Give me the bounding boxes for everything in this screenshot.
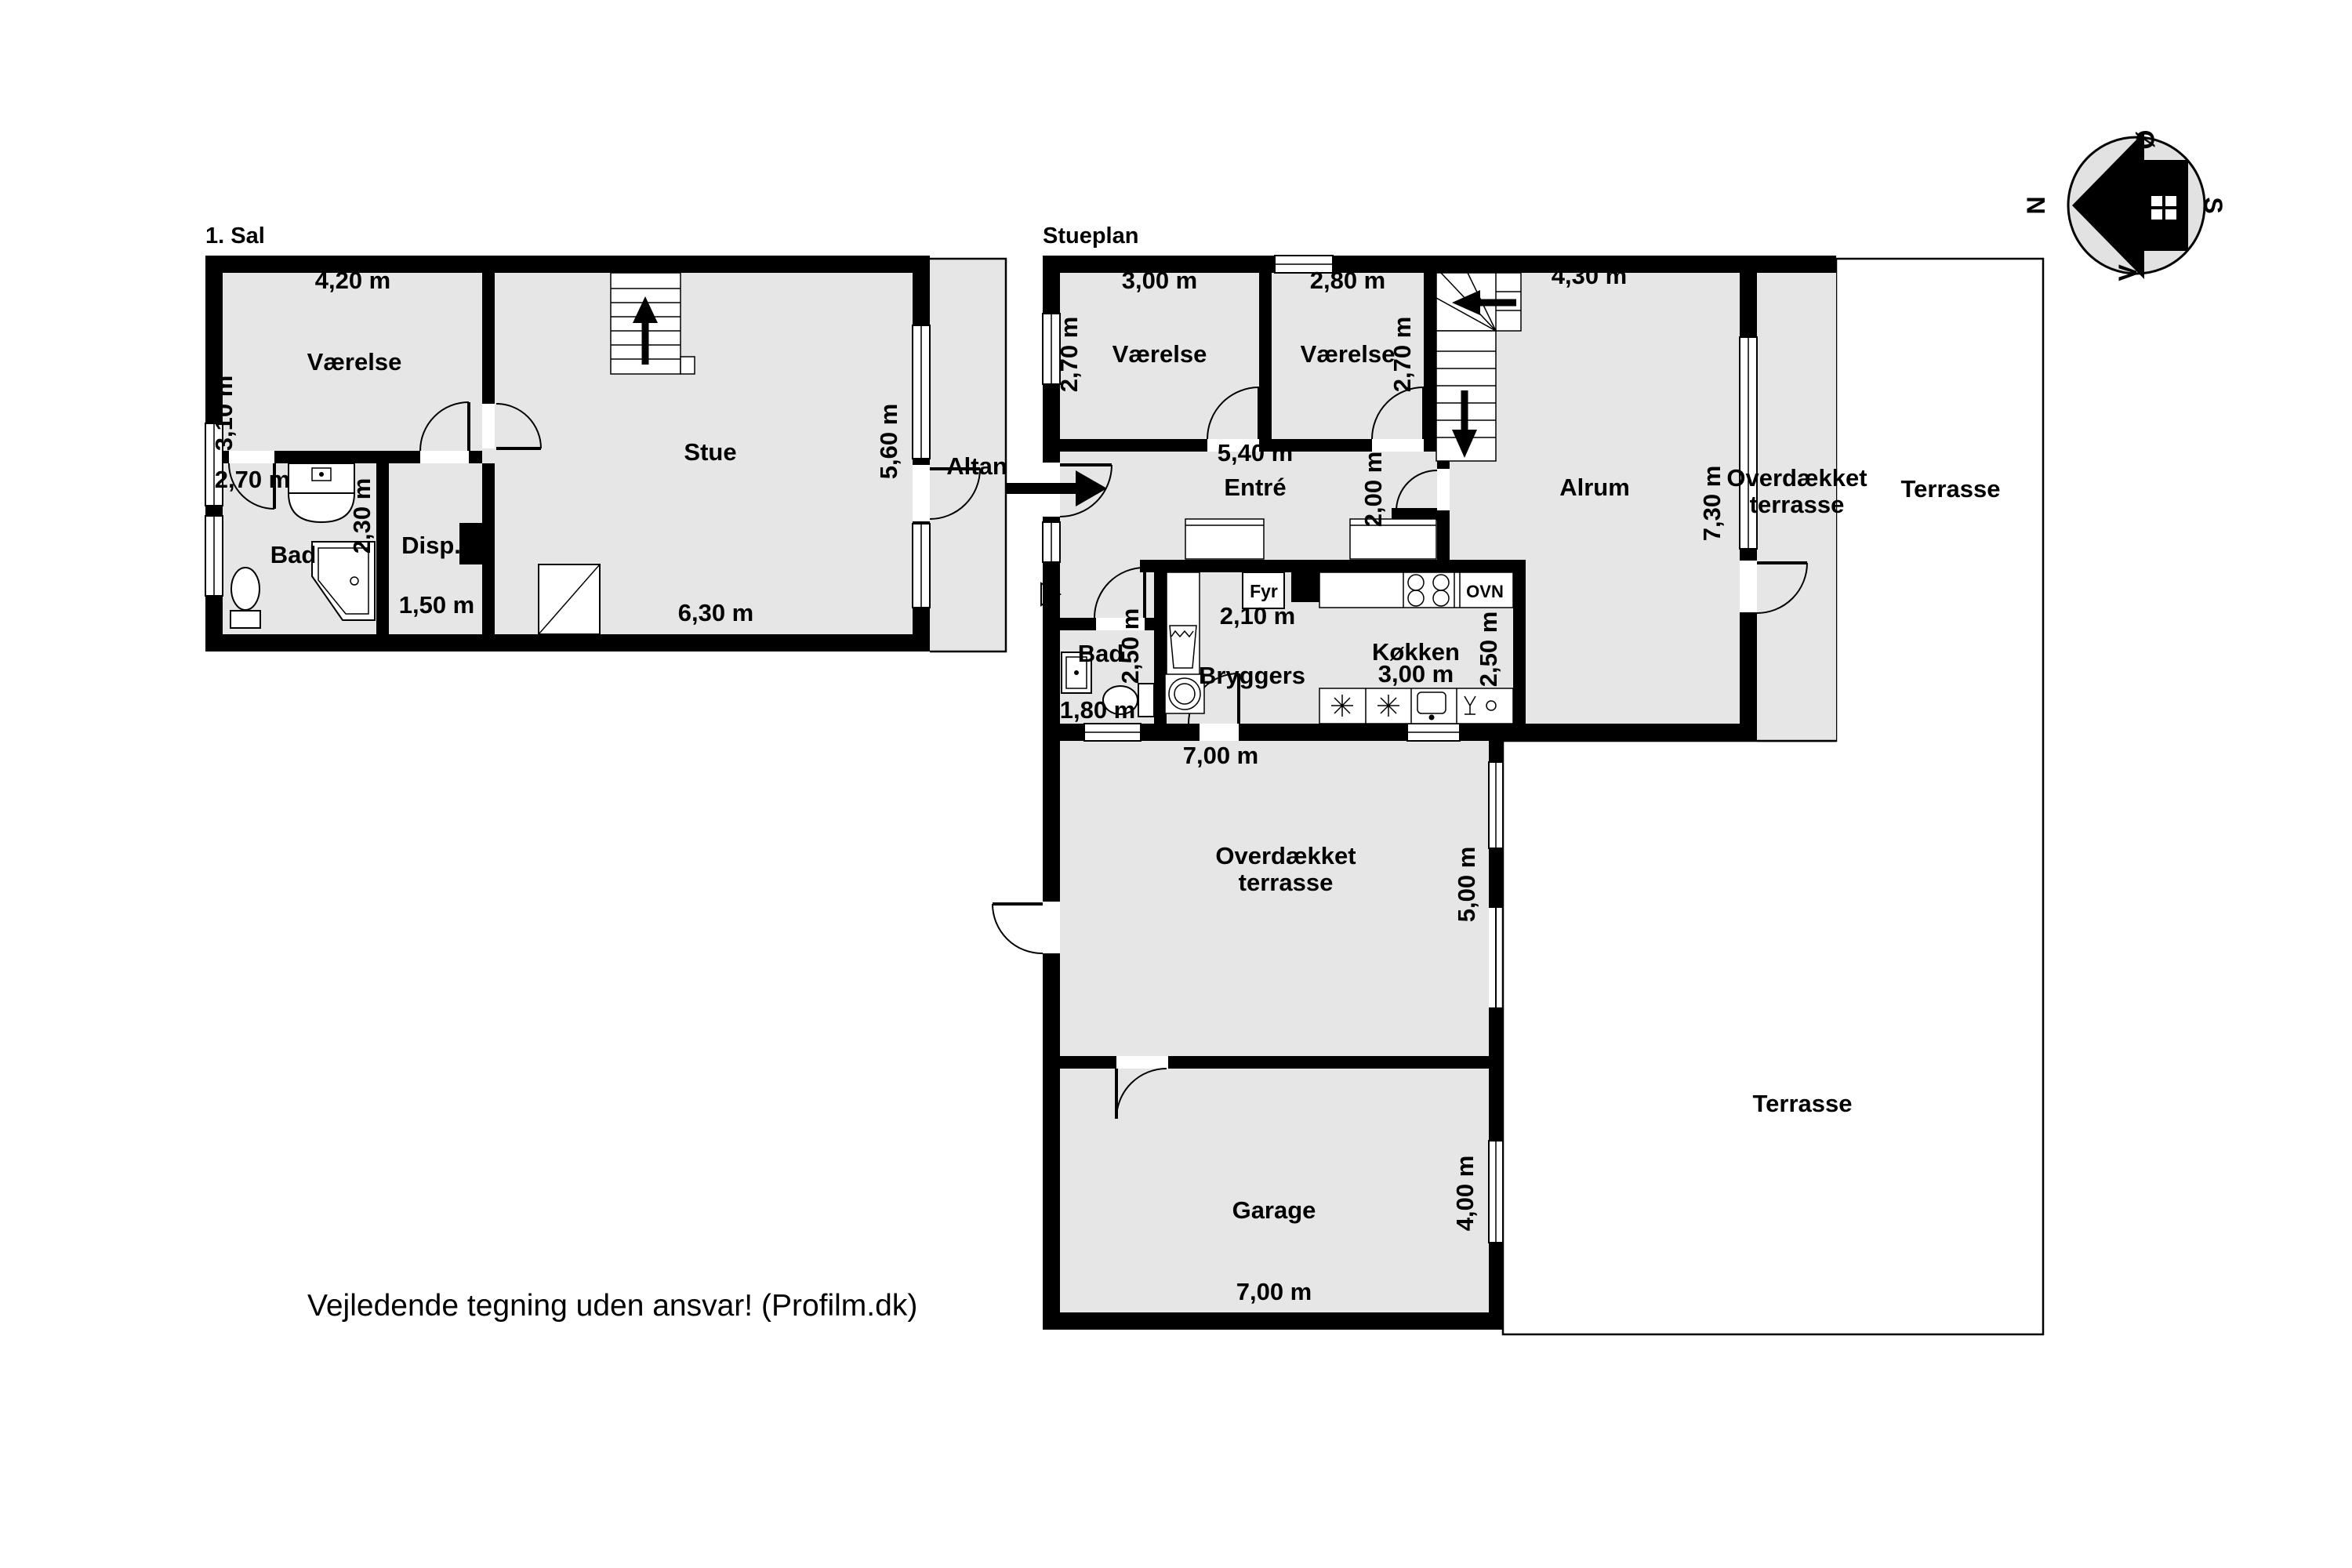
garage-area <box>1060 1069 1489 1312</box>
room-overdaekket-east-line2: terrasse <box>1750 491 1845 518</box>
toilet-icon <box>230 568 260 628</box>
wall-alrum-south <box>1526 724 1757 741</box>
room-vaerelse1: Værelse <box>1112 340 1207 368</box>
dim-bad-1sal-width: 2,70 m <box>215 466 291 493</box>
room-entre: Entré <box>1224 474 1286 501</box>
wall-stub <box>469 451 482 463</box>
terrasse-wall-c <box>1489 1007 1503 1141</box>
room-overdaekket-south-line2: terrasse <box>1239 869 1334 896</box>
terrasse-wall-a <box>1489 741 1503 762</box>
overdaekket-terrasse-south-area <box>1060 741 1489 1056</box>
wall-entre-south <box>1140 560 1526 572</box>
terrasse-fill <box>1836 259 2043 1334</box>
dim-alrum-height: 7,30 m <box>1698 466 1726 542</box>
dim-stue-height: 5,60 m <box>875 404 902 480</box>
room-terrasse-east: Terrasse <box>1901 475 2001 503</box>
chimney-1sal <box>459 523 484 564</box>
dim-stue-width: 6,30 m <box>678 599 754 626</box>
dim-alrum-width: 4,30 m <box>1552 262 1628 289</box>
chimney-stueplan <box>1291 572 1319 602</box>
dim-overdaekket-width: 7,00 m <box>1183 742 1259 769</box>
dim-vaerelse2-height: 2,70 m <box>1388 317 1416 393</box>
room-bad-1sal: Bad <box>270 541 317 568</box>
wall-bad-north-b <box>1145 618 1167 630</box>
wall-disp-stue <box>482 463 495 634</box>
terrasse-wall-b <box>1489 848 1503 908</box>
room-bad-stueplan: Bad <box>1078 640 1124 667</box>
dim-vaerelse1-height: 2,70 m <box>1055 317 1083 393</box>
room-alrum: Alrum <box>1559 474 1630 501</box>
dim-vaerelse-1sal-height: 3,10 m <box>210 376 238 452</box>
compass-letter-n: N <box>2022 196 2050 214</box>
room-disp: Disp. <box>401 532 461 559</box>
dim-overdaekket-height: 5,00 m <box>1453 847 1480 923</box>
disclaimer-text: Vejledende tegning uden ansvar! (Profilm… <box>307 1289 917 1323</box>
dim-bad2-width: 1,80 m <box>1060 696 1136 724</box>
room-garage: Garage <box>1232 1196 1316 1224</box>
dim-koekken-width: 3,00 m <box>1378 660 1454 688</box>
dim-vaerelse2-width: 2,80 m <box>1310 267 1386 294</box>
fixture-ovn-label: OVN <box>1466 582 1504 601</box>
dim-disp-width: 1,50 m <box>399 591 475 619</box>
wall-koekken-east <box>1513 560 1526 741</box>
compass-letter-s: S <box>2199 197 2227 213</box>
compass-rose-icon <box>2068 132 2205 279</box>
dim-koekken-height: 2,50 m <box>1475 612 1502 688</box>
skylight-icon <box>539 564 600 634</box>
floor-title-1sal: 1. Sal <box>205 223 265 249</box>
dim-entre-width: 5,40 m <box>1218 439 1294 466</box>
fixture-fyr-label: Fyr <box>1250 581 1278 601</box>
wall-vaerelse-stue <box>482 273 495 404</box>
room-vaerelse-1sal: Værelse <box>307 348 402 376</box>
wall-bad-disp <box>376 463 389 634</box>
dim-passage: 2,00 m <box>1359 452 1387 528</box>
dim-vaerelse1-width: 3,00 m <box>1122 267 1198 294</box>
dim-garage-width: 7,00 m <box>1236 1278 1312 1305</box>
terrasse-wall-d <box>1489 1243 1503 1312</box>
sink-icon <box>289 463 354 522</box>
room-stue: Stue <box>684 438 736 466</box>
floor-title-stueplan: Stueplan <box>1043 223 1138 249</box>
dim-bryggers-width: 2,10 m <box>1220 602 1296 630</box>
room-terrasse-south: Terrasse <box>1753 1090 1853 1117</box>
room-overdaekket-south-line1: Overdækket <box>1215 842 1356 869</box>
floor-plan-ground-floor <box>993 256 2043 1334</box>
wall-v1-v2 <box>1259 273 1272 439</box>
floor-plan-page: 1. Sal4,20 m3,10 mVærelse2,70 m2,30 mBad… <box>0 0 2352 1568</box>
compass-letter-oe: Ø <box>2131 130 2159 150</box>
room-bryggers: Bryggers <box>1199 662 1305 689</box>
wall-v2-stairs <box>1424 273 1436 439</box>
laundry-sink-icon <box>1170 626 1196 668</box>
compass-letter-v: V <box>2114 264 2142 281</box>
dim-garage-height: 4,00 m <box>1451 1156 1479 1232</box>
floor-plan-drawing: 1. Sal4,20 m3,10 mVærelse2,70 m2,30 mBad… <box>0 0 2352 1568</box>
room-overdaekket-east-line1: Overdækket <box>1726 464 1867 492</box>
garage-wall-south <box>1043 1312 1503 1330</box>
dim-vaerelse-1sal-width: 4,20 m <box>315 267 391 294</box>
wall-bad-north-a <box>1060 618 1096 630</box>
kitchen-counter-south <box>1319 688 1513 724</box>
room-vaerelse2: Værelse <box>1301 340 1396 368</box>
dim-bad-1sal-height: 2,30 m <box>348 478 376 554</box>
outer-wall-left <box>1043 273 1060 1330</box>
garage-wall-north-b <box>1168 1056 1489 1069</box>
garage-wall-north-a <box>1060 1056 1116 1069</box>
room-altan: Altan <box>946 452 1007 480</box>
